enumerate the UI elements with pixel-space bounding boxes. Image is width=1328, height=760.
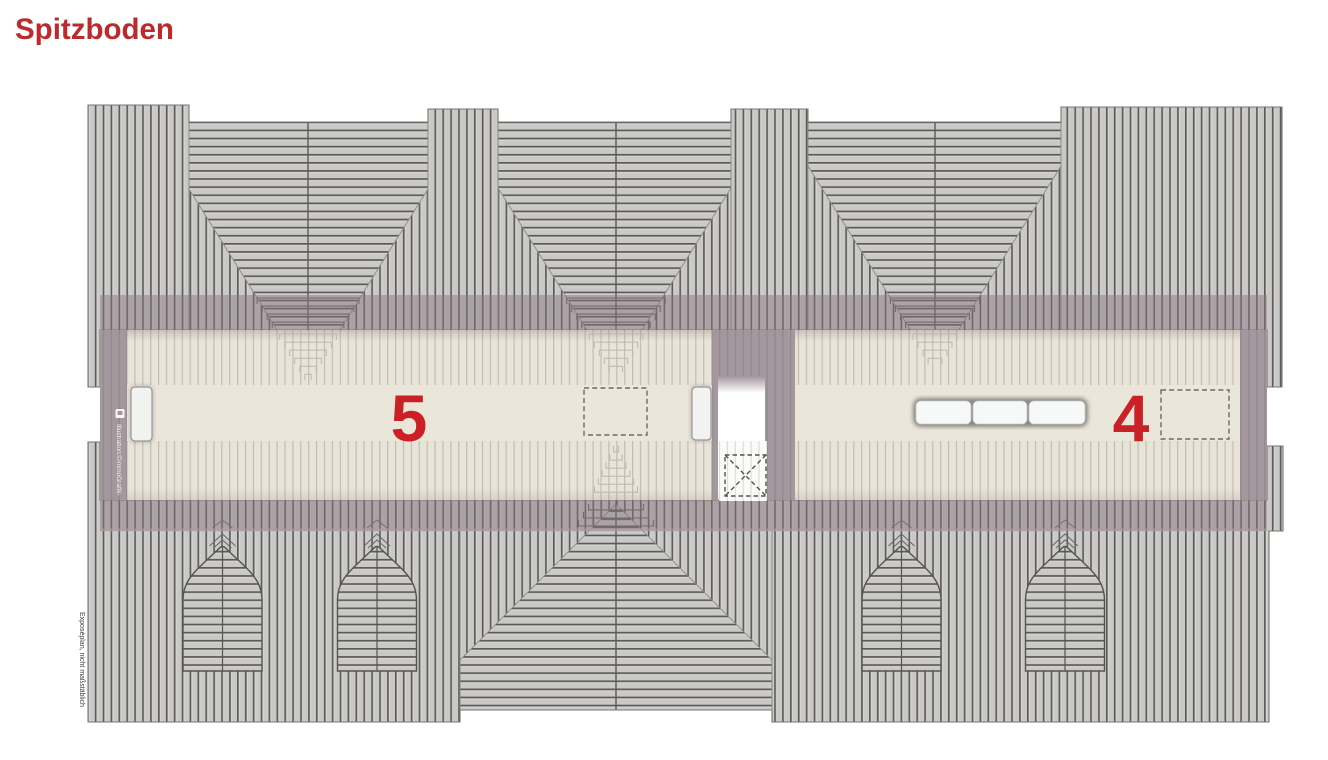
svg-text:5: 5 — [391, 381, 428, 455]
svg-text:Illustration:©immoGrafik-: Illustration:©immoGrafik- — [115, 424, 123, 496]
svg-text:Spitzboden: Spitzboden — [15, 13, 174, 46]
svg-text:4: 4 — [1113, 381, 1150, 455]
svg-text:Exposéplan, nicht maßstäblich: Exposéplan, nicht maßstäblich — [78, 612, 85, 707]
